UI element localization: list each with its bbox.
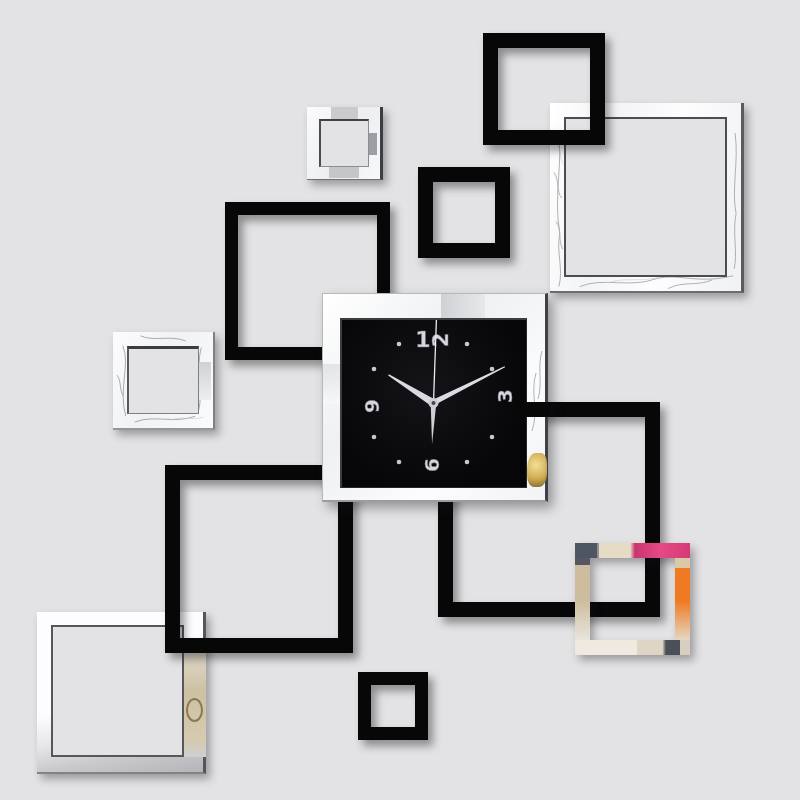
gold-ring-reflection (186, 698, 203, 722)
mirror-reflection-patch (199, 362, 211, 400)
numeral-6: 6 (420, 458, 444, 472)
mirror-reflection-patch (331, 107, 358, 119)
clock-dial-graphic: 1 2 3 6 9 (322, 293, 548, 502)
mirror-frame-opening (319, 119, 369, 167)
mirror-frame-opening (127, 346, 199, 414)
center-hub-pin (432, 401, 436, 405)
mirror-reflection-patch (329, 167, 359, 178)
numeral-12-digit-2: 2 (429, 333, 453, 348)
black-frame-top (483, 33, 605, 145)
wall-clock: 1 2 3 6 9 (322, 293, 548, 502)
black-frame-small-bottom (358, 672, 428, 740)
numeral-3: 3 (493, 389, 517, 403)
mirror-frame-small-top (307, 107, 383, 180)
reflection-band-top (575, 543, 690, 558)
reflection-band-right (675, 558, 690, 640)
reflection-band-bottom (575, 640, 690, 655)
numeral-9: 9 (360, 399, 384, 413)
black-frame-small-center (418, 167, 510, 258)
mirror-frame-small-left (113, 332, 215, 430)
reflection-band-left (575, 558, 590, 640)
wall-clock-product-photo: DIY 3D acrylic mirror wall clock sticker… (0, 0, 800, 800)
mirror-frame-colorful (575, 543, 690, 655)
black-frame-overlap-segment (518, 402, 551, 417)
branch-reflection-graphic (532, 351, 542, 431)
